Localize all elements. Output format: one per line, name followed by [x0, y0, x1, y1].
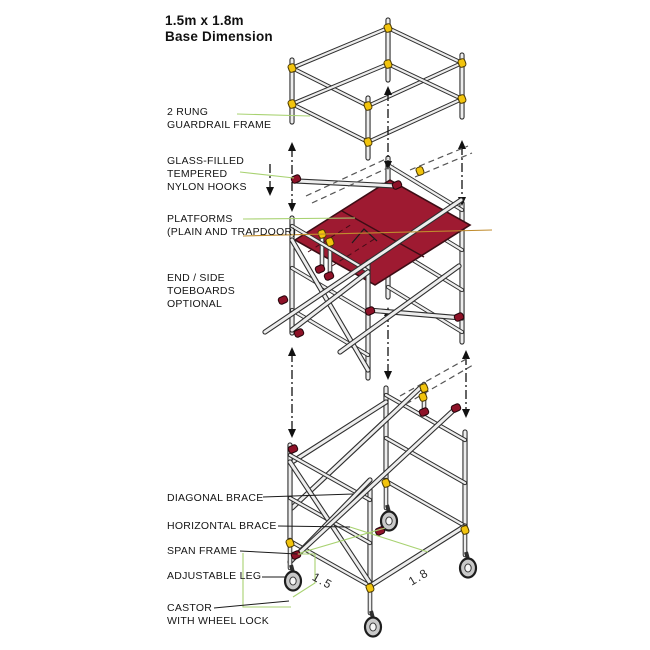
castor-wheel: [460, 552, 476, 578]
title-line-2: Base Dimension: [165, 29, 273, 45]
label-nylon-hooks: GLASS-FILLED TEMPERED NYLON HOOKS: [167, 155, 247, 194]
label-span-frame: SPAN FRAME: [167, 545, 237, 558]
castor-wheel: [285, 565, 301, 591]
scaffold-tower-diagram: [0, 0, 650, 650]
label-horizontal-brace: HORIZONTAL BRACE: [167, 520, 277, 533]
label-toeboards: END / SIDE TOEBOARDS OPTIONAL: [167, 272, 235, 311]
assembly-arrow-icon: [266, 164, 274, 196]
label-platforms: PLATFORMS (PLAIN AND TRAPDOOR): [167, 213, 296, 239]
assembly-arrow-icon: [288, 347, 296, 438]
castor-wheel: [381, 505, 397, 531]
castor-wheels: [285, 505, 476, 637]
label-adjustable-leg: ADJUSTABLE LEG: [167, 570, 261, 583]
page-title: 1.5m x 1.8m Base Dimension: [165, 13, 273, 45]
label-guardrail-frame: 2 RUNG GUARDRAIL FRAME: [167, 106, 271, 132]
title-line-1: 1.5m x 1.8m: [165, 13, 273, 29]
castor-wheel: [365, 611, 381, 637]
label-castor: CASTOR WITH WHEEL LOCK: [167, 602, 269, 628]
diagram-canvas: 1.5m x 1.8m Base Dimension 2 RUNG GUARDR…: [0, 0, 650, 650]
label-diagonal-brace: DIAGONAL BRACE: [167, 492, 263, 505]
